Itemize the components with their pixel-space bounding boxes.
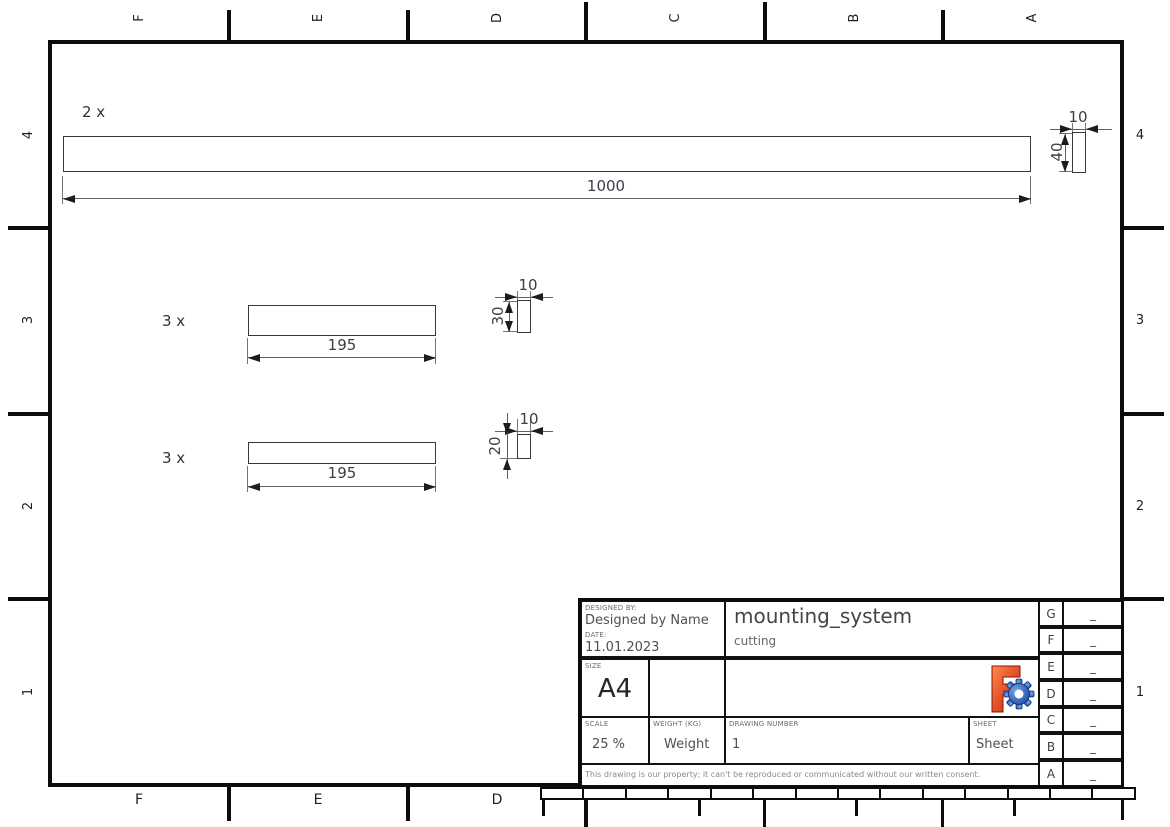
revision-value: _: [1062, 760, 1124, 787]
titleblock-title-cell: mounting_system cutting: [724, 600, 1040, 658]
part-view-bar-195-30: [248, 305, 436, 336]
grid-tick: [1124, 412, 1164, 416]
grid-label-left-2: 2: [18, 496, 38, 516]
revision-letter: F: [1038, 627, 1064, 653]
titleblock-empty-cell: [648, 658, 726, 718]
grid-label-right-2: 2: [1130, 496, 1150, 516]
sheet-label: SHEET: [973, 720, 997, 728]
grid-label-left-3: 3: [18, 310, 38, 330]
dimension-line: [248, 486, 436, 487]
titleblock-scale-cell: SCALE 25 %: [580, 716, 650, 765]
ruler-tick: [542, 800, 545, 816]
weight-label: WEIGHT (KG): [653, 720, 701, 728]
titleblock-weight-cell: WEIGHT (KG) Weight: [648, 716, 726, 765]
dimension-10: 10: [509, 276, 547, 294]
dimension-line: [63, 198, 1031, 199]
size-label: SIZE: [585, 662, 602, 670]
arrowhead: [503, 459, 511, 470]
dimension-line: [495, 297, 553, 298]
ruler-tick: [763, 800, 766, 827]
grid-tick: [1124, 597, 1164, 601]
revision-letter: D: [1038, 680, 1064, 707]
ruler-tick: [1013, 800, 1016, 816]
grid-label-top-f: F: [129, 8, 149, 28]
grid-tick: [584, 2, 588, 40]
revision-letter: E: [1038, 653, 1064, 680]
revision-letter: G: [1038, 600, 1064, 627]
revision-letter: A: [1038, 760, 1064, 787]
arrowhead: [248, 483, 260, 491]
size-value: A4: [582, 674, 648, 704]
dimension-line: [248, 357, 436, 358]
grid-label-right-4: 4: [1130, 125, 1150, 145]
date-label: DATE:: [585, 631, 607, 639]
dimension-195: 195: [311, 336, 373, 354]
arrowhead: [248, 354, 260, 362]
grid-label-left-4: 4: [18, 125, 38, 145]
arrowhead: [1019, 195, 1031, 203]
grid-tick: [8, 597, 48, 601]
grid-label-right-3: 3: [1130, 310, 1150, 330]
grid-label-top-a: A: [1022, 8, 1042, 28]
sheet-value: Sheet: [976, 737, 1014, 752]
arrowhead: [505, 293, 517, 301]
disclaimer-text: This drawing is our property; it can't b…: [585, 770, 980, 779]
grid-tick: [763, 2, 767, 40]
dimension-1000: 1000: [571, 177, 641, 195]
ruler-tick: [698, 800, 701, 816]
arrowhead: [531, 427, 543, 435]
grid-label-top-e: E: [308, 8, 328, 28]
ruler-tick: [941, 800, 944, 827]
titleblock-drawingnumber-cell: DRAWING NUMBER 1: [724, 716, 970, 765]
revision-value: _: [1062, 707, 1124, 733]
grid-label-bottom-f: F: [129, 790, 149, 810]
scale-value: 25 %: [592, 737, 625, 752]
revision-value: _: [1062, 653, 1124, 680]
revision-value: _: [1062, 733, 1124, 760]
arrowhead: [503, 423, 511, 434]
dimension-10: 10: [510, 410, 548, 428]
weight-value: Weight: [664, 737, 709, 752]
grid-label-top-b: B: [844, 8, 864, 28]
grid-tick: [8, 412, 48, 416]
dimension-20: 20: [486, 430, 502, 462]
designed-by-label: DESIGNED BY:: [585, 604, 637, 612]
quantity-label: 3 x: [162, 449, 185, 467]
grid-tick: [941, 10, 945, 40]
titleblock-sheet-cell: SHEET Sheet: [968, 716, 1040, 765]
revision-letter: B: [1038, 733, 1064, 760]
titleblock-designedby-cell: DESIGNED BY: Designed by Name DATE: 11.0…: [580, 600, 726, 658]
ruler-tick: [1121, 800, 1124, 820]
arrowhead: [424, 354, 436, 362]
revision-value: _: [1062, 600, 1124, 627]
arrowhead: [1086, 125, 1098, 133]
arrowhead: [63, 195, 75, 203]
ruler-tick: [855, 800, 858, 816]
grid-tick: [8, 226, 48, 230]
part-view-bar-195-20: [248, 442, 436, 464]
arrowhead: [424, 483, 436, 491]
extension-line: [500, 458, 517, 459]
drawing-number-value: 1: [732, 737, 740, 752]
drawing-subtitle: cutting: [734, 634, 776, 648]
drawing-title: mounting_system: [734, 604, 912, 628]
grid-tick: [227, 787, 231, 821]
revision-letter: C: [1038, 707, 1064, 733]
grid-label-top-d: D: [487, 8, 507, 28]
dimension-10: 10: [1059, 108, 1097, 126]
designed-by-value: Designed by Name: [585, 613, 709, 628]
date-value: 11.01.2023: [585, 640, 659, 655]
revision-value: _: [1062, 680, 1124, 707]
ruler-tick: [585, 800, 588, 827]
section-view-30: [517, 300, 531, 333]
grid-tick: [406, 10, 410, 40]
titleblock-size-cell: SIZE A4: [580, 658, 650, 718]
dimension-195: 195: [311, 464, 373, 482]
drawing-sheet: F E D C B A 4 3 2 1 4 3 2 1 F E D 2 x 10…: [0, 0, 1170, 827]
titleblock-disclaimer-cell: This drawing is our property; it can't b…: [580, 763, 1040, 787]
arrowhead: [1060, 125, 1072, 133]
grid-tick: [406, 787, 410, 821]
revision-value: _: [1062, 627, 1124, 653]
quantity-label: 2 x: [82, 103, 105, 121]
grid-label-right-1: 1: [1130, 682, 1150, 702]
arrowhead: [531, 293, 543, 301]
grid-label-bottom-e: E: [308, 790, 328, 810]
grid-label-left-1: 1: [18, 682, 38, 702]
scale-label: SCALE: [585, 720, 608, 728]
quantity-label: 3 x: [162, 312, 185, 330]
dimension-40: 40: [1048, 136, 1064, 168]
section-view-40: [1072, 132, 1086, 173]
freecad-logo-icon: [986, 664, 1038, 714]
dimension-30: 30: [489, 300, 505, 332]
drawing-number-label: DRAWING NUMBER: [729, 720, 799, 728]
template-scale-ruler: [540, 787, 1136, 800]
section-view-20: [517, 434, 531, 459]
grid-label-top-c: C: [665, 8, 685, 28]
grid-tick: [227, 10, 231, 40]
grid-label-bottom-d: D: [487, 790, 507, 810]
grid-tick: [1124, 226, 1164, 230]
part-view-bar-1000: [63, 136, 1031, 172]
